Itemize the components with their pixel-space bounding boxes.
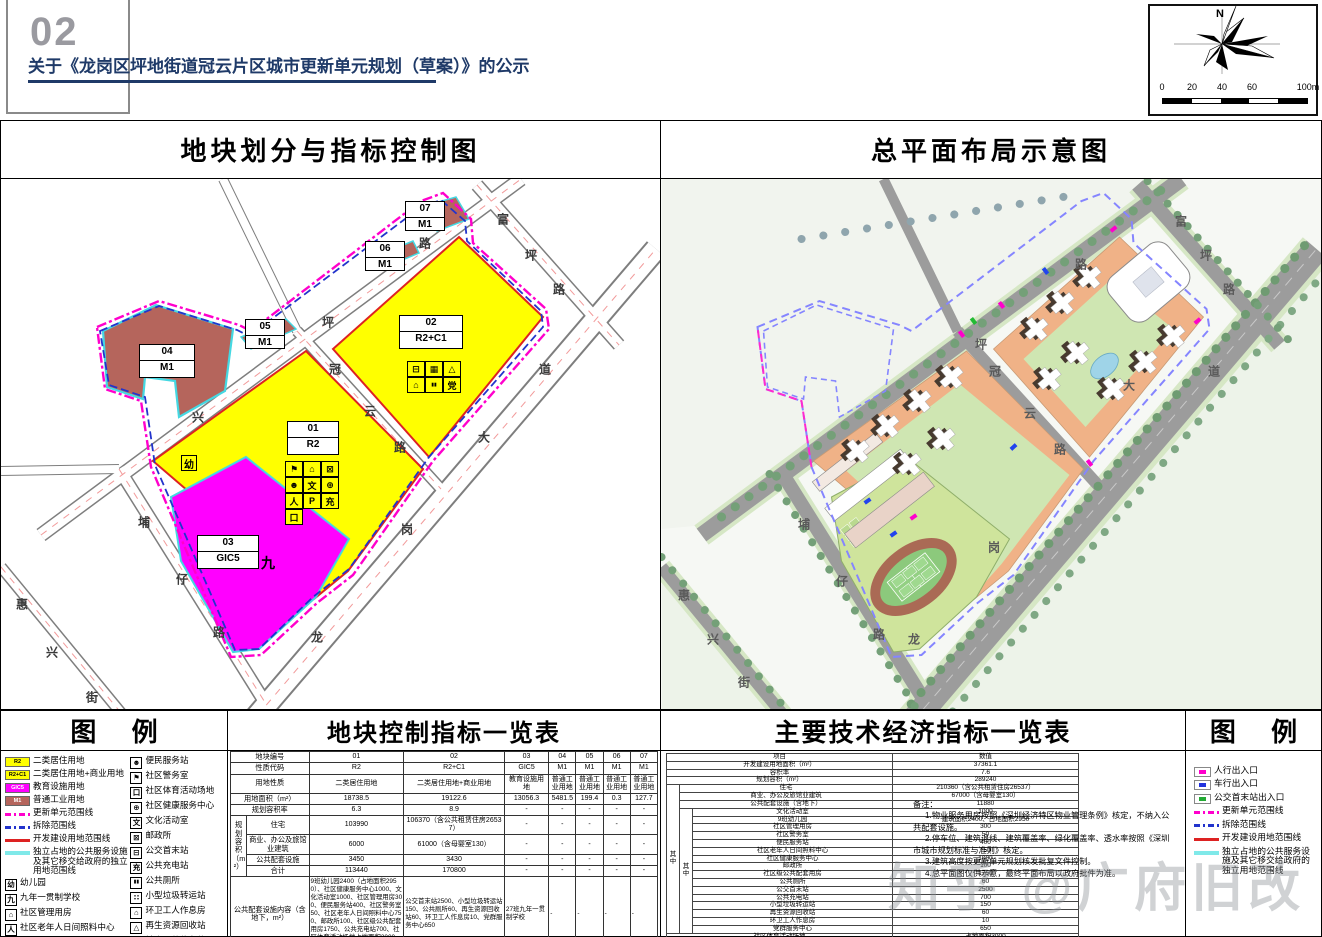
legend-label: 普通工业用地 [33, 795, 85, 805]
row-header: 社区老年人日间照料中心 [693, 847, 893, 855]
scale-seg [1278, 99, 1307, 103]
plot-label-02: 02R2+C1 [399, 315, 463, 349]
legend-label: 小型垃圾转运站 [145, 891, 205, 901]
legend-item: ⚑社区警务室 [130, 771, 224, 784]
row-header: 住宅 [247, 816, 309, 835]
plot-id: 04 [140, 345, 194, 360]
table-row: 党群服务中心650 [667, 925, 1079, 933]
masterplan-panel-title: 总平面布局示意图 [661, 121, 1321, 179]
table-cell: 6.3 [309, 804, 404, 815]
table-cell: 普通工业用地 [576, 774, 603, 793]
zoning-panel-title: 地块划分与指标控制图 [1, 121, 660, 179]
parking-icon: P [303, 493, 321, 509]
row-header: 规划容积率 [231, 804, 310, 815]
table-cell: 02 [404, 752, 505, 763]
table-cell: 占地面积3000 [893, 933, 1079, 937]
table-cell: 113440 [309, 866, 404, 877]
legend-label: 社区健康服务中心 [145, 801, 214, 811]
plot-label-01: 01R2 [287, 421, 339, 455]
plot-id: 02 [400, 316, 462, 331]
legend-item: ▮▮公共厕所 [130, 876, 224, 889]
scale-labels: 0204060100m [1156, 82, 1316, 94]
table-cell: - [603, 816, 630, 835]
legend-item: 人社区老年人日间照料中心 [5, 923, 128, 936]
table-cell: 8.9 [404, 804, 505, 815]
elderly-care-icon: 人 [5, 924, 17, 936]
table-row: 合计113440170800----- [231, 866, 658, 877]
legend-label: 邮政所 [145, 831, 171, 841]
header: 02 关于《龙岗区坪地街道冠云片区城市更新单元规划（草案）》的公示 N [0, 0, 1322, 120]
legend-label: 社区管理用房 [20, 908, 72, 918]
toilet-icon: ▮▮ [425, 377, 443, 393]
plot-id: 03 [198, 536, 258, 551]
table-row: 规划容积率6.38.9----- [231, 804, 658, 815]
legend-label: 再生资源回收站 [145, 921, 205, 931]
legend-label: 幼儿园 [20, 878, 46, 888]
scale-tick: 0 [1159, 82, 1164, 92]
road-label: 兴 [46, 644, 58, 661]
road-label: 路 [1075, 256, 1087, 273]
r2c1-area-chip: R2+C1 [5, 770, 30, 780]
table-cell: 普通工业用地 [630, 774, 657, 793]
legend-label: 公交首末站出入口 [1214, 793, 1284, 803]
road-label: 坪 [1200, 247, 1212, 264]
table-cell: 03 [504, 752, 548, 763]
legend-label: 独立占地的公共服务设施及其它移交给政府的独立用地范围线 [1222, 847, 1317, 877]
legend-label: 文化活动室 [145, 816, 188, 826]
road-label: 冠 [329, 361, 341, 378]
table-cell: 6000 [309, 835, 404, 855]
demolish-line-chip [1194, 821, 1219, 831]
legend-label: 环卫工人作息房 [145, 906, 205, 916]
table-cell: - [603, 854, 630, 865]
nine-year-school-icon: 九 [5, 894, 17, 906]
charging-icon: 充 [130, 862, 142, 874]
garbage-transfer-icon: ∷ [130, 892, 142, 904]
table-cell: 3450 [309, 854, 404, 865]
bus-entrance-icon [1194, 794, 1211, 804]
table-cell: 37361.1 [893, 761, 1079, 769]
legend-item: 车行出入口 [1194, 779, 1317, 790]
row-group-header: 规划容积（m²） [231, 816, 247, 877]
table-row: 规划容积（m²）住宅103990106370（含公共租赁住房26537）----… [231, 816, 658, 835]
table-cell: M1 [630, 763, 657, 774]
table-cell: 05 [576, 752, 603, 763]
legend-item: ☻便民服务站 [130, 756, 224, 769]
table-cell: - [603, 877, 630, 937]
garbage-transfer-icon: ▦ [425, 361, 443, 377]
notes: 备注：1.物业服务用房按照《深圳经济特区物业管理条例》核定，不纳入公共配套设施。… [913, 799, 1177, 879]
table-cell: - [549, 816, 576, 835]
charging-icon: 充 [321, 493, 339, 509]
table-row: 再生资源回收站60 [667, 910, 1079, 918]
page-number: 02 [30, 10, 79, 55]
table-row: 小型垃圾转运站150 [667, 902, 1079, 910]
table-row: 项目数值 [667, 754, 1079, 762]
legend-item: 更新单元范围线 [1194, 806, 1317, 817]
demolish-line-chip [5, 822, 30, 832]
table-cell: 06 [603, 752, 630, 763]
facility-icon-grid: ⊟▦△⌂▮▮党 [407, 361, 461, 393]
masterplan-map: 坪路富坪路冠云路龙岗大道埔仔路惠兴街 [661, 179, 1321, 709]
update-unit-line-chip [5, 809, 30, 819]
legend-label: 社区警务室 [145, 771, 188, 781]
road-label: 道 [539, 361, 551, 378]
road-label: 大 [478, 429, 490, 446]
sanitation-room-icon: ⌂ [130, 907, 142, 919]
legend-item: ⊟公交首末站 [130, 846, 224, 859]
plot-label-06: 06M1 [365, 241, 405, 271]
table-cell: - [603, 804, 630, 815]
table-cell: GIC5 [504, 763, 548, 774]
table-cell: - [576, 877, 603, 937]
legend-label: 拆除范围线 [1222, 820, 1266, 830]
kindergarten-marker: 幼 [181, 455, 197, 471]
table-cell: 199.4 [576, 793, 603, 804]
table-cell: 二类居住用地+商业用地 [404, 774, 505, 793]
table-cell: - [576, 866, 603, 877]
road-label: 坪 [322, 314, 334, 331]
plot-code: M1 [406, 217, 444, 233]
table-cell: - [630, 816, 657, 835]
table-cell: 07 [630, 752, 657, 763]
legend-item: R2+C1二类居住用地+商业用地 [5, 769, 128, 780]
table-row: 用地性质二类居住用地二类居住用地+商业用地教育设施用地普通工业用地普通工业用地普… [231, 774, 658, 793]
table-cell: 127.7 [630, 793, 657, 804]
plot-table-box: 地块控制指标一览表 地块编号01020304050607性质代码R2R2+C1G… [227, 710, 661, 937]
legend-item: 九九年一贯制学校 [5, 893, 128, 906]
table-row: 环卫工人作息房10 [667, 918, 1079, 926]
table-cell: - [504, 804, 548, 815]
road-label: 街 [738, 674, 750, 691]
plot-code: M1 [140, 360, 194, 376]
table-cell: - [549, 804, 576, 815]
legend-right-box: 图 例 人行出入口车行出入口公交首末站出入口更新单元范围线拆除范围线开发建设用地… [1185, 710, 1322, 937]
legend-left-title: 图 例 [1, 711, 227, 751]
among-header: 其中 [680, 808, 693, 933]
masterplan-panel: 总平面布局示意图 [660, 120, 1322, 710]
row-header: 公共配套设施内容（含地下，m²） [231, 877, 310, 937]
table-cell: 19122.6 [404, 793, 505, 804]
table-cell: 3430 [404, 854, 505, 865]
among-header: 其中 [667, 785, 680, 933]
table-cell: - [549, 866, 576, 877]
note-item: 4.总平面图仅供示意，最终平面布局以政府批件为准。 [913, 868, 1177, 879]
road-label: 兴 [192, 409, 204, 426]
development-line-chip [1194, 834, 1219, 844]
note-item: 1.物业服务用房按照《深圳经济特区物业管理条例》核定，不纳入公共配套设施。 [913, 810, 1177, 833]
party-center-icon: 党 [443, 377, 461, 393]
row-header: 用地面积（m²） [231, 793, 310, 804]
road-label: 岗 [401, 521, 413, 538]
table-cell: - [504, 816, 548, 835]
bus-terminus-icon: ⊟ [407, 361, 425, 377]
legend-item: ⌂社区管理用房 [5, 908, 128, 921]
table-cell: - [603, 835, 630, 855]
legend-item: △再生资源回收站 [130, 921, 224, 934]
legend-item: 幼幼儿园 [5, 878, 128, 891]
table-row: 公共配套设施34503430----- [231, 854, 658, 865]
table-cell: 170800 [404, 866, 505, 877]
table-cell: 01 [309, 752, 404, 763]
table-cell: 普通工业用地 [549, 774, 576, 793]
plot-id: 06 [366, 242, 404, 257]
plot-label-05: 05M1 [245, 319, 285, 349]
legend-label: 社区老年人日间照料中心 [20, 923, 115, 933]
police-station-icon: ⚑ [130, 772, 142, 784]
compass-box: N 0204060100m [1148, 4, 1318, 116]
post-office-icon: ⊠ [130, 832, 142, 844]
plot-label-03: 03GIC5 [197, 535, 259, 569]
road-label: 云 [1024, 405, 1036, 422]
road-label: 埔 [138, 514, 150, 531]
legend-label: 更新单元范围线 [33, 808, 93, 818]
table-cell: - [549, 877, 576, 937]
vehicle-entrance-icon [1194, 780, 1211, 790]
note-item: 2.停车位、建筑退线、建筑覆盖率、绿化覆盖率、透水率按照《深圳市城市规划标准与准… [913, 833, 1177, 856]
masterplan-map-svg [661, 179, 1321, 709]
legend-label: 教育设施用地 [33, 782, 85, 792]
legend-item: 拆除范围线 [1194, 820, 1317, 831]
legend-label: 车行出入口 [1214, 779, 1258, 789]
legend-item: 人行出入口 [1194, 766, 1317, 777]
legend-item: ∷小型垃圾转运站 [130, 891, 224, 904]
road-label: 冠 [989, 363, 1001, 380]
table-row: 公共厕所60 [667, 879, 1079, 887]
plot-code: R2 [288, 437, 338, 453]
school-marker: 九 [261, 553, 275, 573]
table-row: 地块编号01020304050607 [231, 752, 658, 763]
legend-item: ⌂环卫工人作息房 [130, 906, 224, 919]
bus-terminus-icon: ⊟ [130, 847, 142, 859]
legend-item: ⊠邮政所 [130, 831, 224, 844]
community-mgmt-icon: ⌂ [5, 909, 17, 921]
pedestrian-entrance-icon [1194, 767, 1211, 777]
road-label: 惠 [16, 596, 28, 613]
elderly-care-icon: 人 [285, 493, 303, 509]
road-label: 路 [1054, 441, 1066, 458]
table-cell: - [630, 835, 657, 855]
road-label: 路 [213, 624, 225, 641]
road-label: 道 [1208, 363, 1220, 380]
convenience-station-icon: ☻ [285, 477, 303, 493]
scale-seg [1192, 99, 1221, 103]
page-title: 关于《龙岗区坪地街道冠云片区城市更新单元规划（草案）》的公示 [28, 52, 530, 77]
table-cell: 106370（含公共租赁住房26537） [404, 816, 505, 835]
legend-item: 开发建设用地范围线 [5, 834, 128, 845]
r2-area-chip: R2 [5, 757, 30, 767]
table-cell: 2500 [893, 886, 1079, 894]
table-cell: M1 [576, 763, 603, 774]
road-label: 云 [364, 403, 376, 420]
table-row: 公共配套设施内容（含地下，m²）9班幼儿园2400（占地面积2950）、社区健康… [231, 877, 658, 937]
row-header: 开发建设用地面积（m²） [667, 761, 893, 769]
culture-room-icon: 文 [303, 477, 321, 493]
table-cell: M1 [549, 763, 576, 774]
legend-item: M1普通工业用地 [5, 795, 128, 806]
plot-code: R2+C1 [400, 331, 462, 347]
table-cell: 二类居住用地 [309, 774, 404, 793]
recycling-icon: △ [130, 922, 142, 934]
table-cell: 教育设施用地 [504, 774, 548, 793]
table-cell: 04 [549, 752, 576, 763]
table-row: 容积率7.6 [667, 769, 1079, 777]
table-cell: - [576, 835, 603, 855]
road-label: 富 [497, 211, 509, 228]
zoning-panel: 地块划分与指标控制图 [0, 120, 661, 710]
kindergarten-icon: 幼 [5, 879, 17, 891]
road-label: 富 [1175, 213, 1187, 230]
road-label: 路 [394, 439, 406, 456]
row-header: 用地性质 [231, 774, 310, 793]
recycling-icon: △ [443, 361, 461, 377]
table-row: 开发建设用地面积（m²）37361.1 [667, 761, 1079, 769]
row-header: 公交首末站 [693, 886, 893, 894]
legend-label: 人行出入口 [1214, 766, 1258, 776]
plot-code: M1 [366, 257, 404, 273]
legend-label: 二类居住用地 [33, 756, 85, 766]
legend-label: 独立占地的公共服务设施及其它移交给政府的独立用地范围线 [33, 847, 128, 876]
legend-item: 拆除范围线 [5, 821, 128, 832]
legend-right-title: 图 例 [1186, 711, 1321, 751]
road-label: 龙 [908, 631, 920, 648]
notes-title: 备注： [913, 799, 1177, 810]
table-cell: R2 [309, 763, 404, 774]
table-cell: 5481.5 [549, 793, 576, 804]
table-cell: - [549, 835, 576, 855]
title-underline [28, 80, 436, 83]
table-cell: 普通工业用地 [603, 774, 630, 793]
scale-tick: 40 [1217, 82, 1227, 92]
public-notice-page: 02 关于《龙岗区坪地街道冠云片区城市更新单元规划（草案）》的公示 N [0, 0, 1322, 937]
facility-icon-grid: ⚑⌂⊠☻文⊕人P充口 [285, 461, 339, 525]
legend-label: 九年一贯制学校 [20, 893, 80, 903]
road-label: 埔 [798, 516, 810, 533]
econ-table-title: 主要技术经济指标一览表 [661, 711, 1185, 751]
table-cell: 公交首末站2500、小型垃圾转运站150、公共厕所60、再生资源回收站60、环卫… [404, 877, 505, 937]
culture-room-icon: 文 [130, 817, 142, 829]
legend-label: 社区体育活动场地 [145, 786, 214, 796]
legend-item: 独立占地的公共服务设施及其它移交给政府的独立用地范围线 [5, 847, 128, 876]
sports-ground-icon: 口 [285, 509, 303, 525]
table-cell: - [630, 866, 657, 877]
legend-item: 口社区体育活动场地 [130, 786, 224, 799]
table-cell: - [630, 804, 657, 815]
road-label: 路 [1223, 281, 1235, 298]
independent-land-line-chip [1194, 848, 1219, 858]
legend-item: R2二类居住用地 [5, 756, 128, 767]
table-cell: - [504, 854, 548, 865]
row-header: 社区体育活动场地 [667, 933, 893, 937]
plot-id: 07 [406, 202, 444, 217]
road-label: 坪 [525, 247, 537, 264]
table-cell: - [504, 866, 548, 877]
legend-label: 便民服务站 [145, 756, 188, 766]
table-row: 公交首末站2500 [667, 886, 1079, 894]
health-center-icon: ⊕ [321, 477, 339, 493]
road-label: 街 [86, 689, 98, 706]
police-station-icon: ⚑ [285, 461, 303, 477]
legend-label: 拆除范围线 [33, 821, 76, 831]
table-cell: - [603, 866, 630, 877]
table-row: 公共充电站700 [667, 894, 1079, 902]
scale-tick: 20 [1187, 82, 1197, 92]
scale-seg [1249, 99, 1278, 103]
legend-item: 开发建设用地范围线 [1194, 833, 1317, 844]
compass-rose-icon [1150, 6, 1316, 76]
row-header: 性质代码 [231, 763, 310, 774]
table-cell: 18738.5 [309, 793, 404, 804]
legend-item: 更新单元范围线 [5, 808, 128, 819]
table-cell: 61000（含母婴室130） [404, 835, 505, 855]
legend-item: 充公共充电站 [130, 861, 224, 874]
road-label: 兴 [707, 631, 719, 648]
table-cell: - [630, 854, 657, 865]
table-cell: - [576, 854, 603, 865]
road-label: 坪 [975, 336, 987, 353]
table-cell: - [576, 804, 603, 815]
legend-label: 公共充电站 [145, 861, 188, 871]
note-item: 3.建筑高度按更新单元规划核发批复文件控制。 [913, 856, 1177, 867]
legend-label: 公共厕所 [145, 876, 179, 886]
update-unit-line-chip [1194, 807, 1219, 817]
scale-bar [1162, 98, 1308, 104]
econ-table-box: 主要技术经济指标一览表 项目数值开发建设用地面积（m²）37361.1容积率7.… [660, 710, 1186, 937]
legend-item: 公交首末站出入口 [1194, 793, 1317, 804]
independent-land-line-chip [5, 848, 30, 858]
north-label: N [1216, 8, 1224, 20]
community-mgmt-icon: ⌂ [303, 461, 321, 477]
scale-tick: 60 [1247, 82, 1257, 92]
road-label: 路 [553, 281, 565, 298]
table-cell: - [630, 877, 657, 937]
legend-label: 公交首末站 [145, 846, 188, 856]
plot-code: M1 [246, 335, 284, 351]
row-header: 公共配套设施 [247, 854, 309, 865]
convenience-station-icon: ☻ [130, 757, 142, 769]
scale-seg [1163, 99, 1192, 103]
legend-item: 文文化活动室 [130, 816, 224, 829]
plot-label-04: 04M1 [139, 344, 195, 378]
road-label: 龙 [311, 629, 323, 646]
table-row: 商业、办公及旅馆业建筑600061000（含母婴室130）----- [231, 835, 658, 855]
road-label: 惠 [678, 587, 690, 604]
table-cell: 9班幼儿园2400（占地面积2950）、社区健康服务中心1000、文化活动室10… [309, 877, 404, 937]
sports-ground-icon: 口 [130, 787, 142, 799]
road-label: 路 [873, 626, 885, 643]
row-header: 文化活动室 [693, 808, 893, 816]
scale-end: 100m [1297, 82, 1320, 92]
row-header: 商业、办公及旅馆业建筑 [247, 835, 309, 855]
table-cell: 13056.3 [504, 793, 548, 804]
table-cell: - [576, 816, 603, 835]
post-office-icon: ⊠ [321, 461, 339, 477]
legend-item: GIC5教育设施用地 [5, 782, 128, 793]
road-label: 岗 [988, 539, 1000, 556]
road-label: 路 [419, 235, 431, 252]
road-label: 仔 [176, 571, 188, 588]
scale-seg [1221, 99, 1250, 103]
table-row: 用地面积（m²）18738.519122.613056.35481.5199.4… [231, 793, 658, 804]
row-header: 合计 [247, 866, 309, 877]
legend-label: 二类居住用地+商业用地 [33, 769, 124, 779]
table-cell: M1 [603, 763, 630, 774]
legend-label: 开发建设用地范围线 [1222, 833, 1301, 843]
table-row: 性质代码R2R2+C1GIC5M1M1M1M1 [231, 763, 658, 774]
road-label: 仔 [836, 573, 848, 590]
gic5-area-chip: GIC5 [5, 783, 30, 793]
plot-control-table: 地块编号01020304050607性质代码R2R2+C1GIC5M1M1M1M… [230, 751, 658, 937]
